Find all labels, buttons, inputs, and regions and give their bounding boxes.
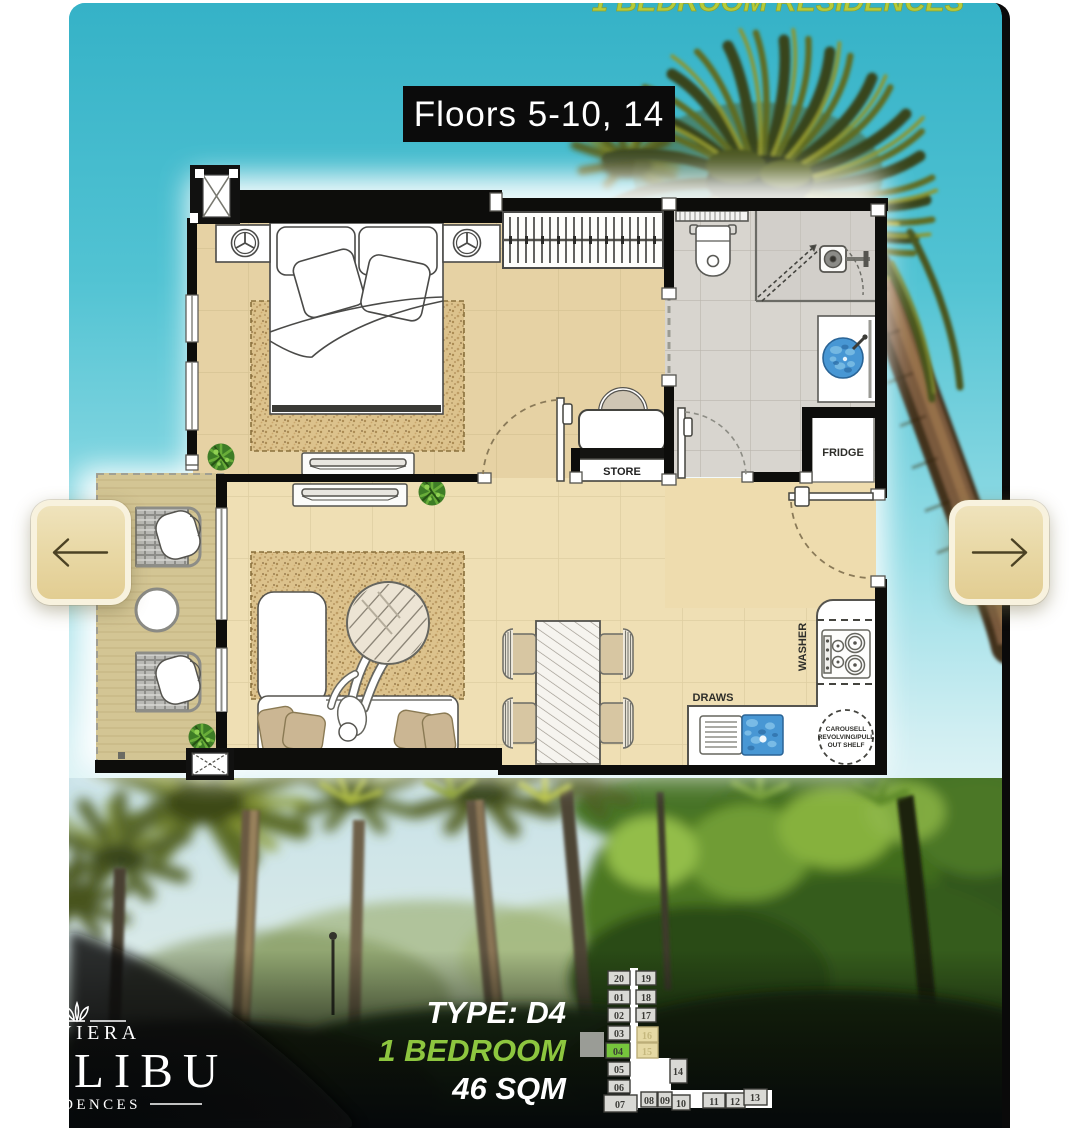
svg-text:18: 18 xyxy=(641,993,651,1004)
svg-text:12: 12 xyxy=(730,1097,740,1108)
svg-text:13: 13 xyxy=(750,1093,760,1104)
svg-text:06: 06 xyxy=(614,1083,624,1094)
svg-text:20: 20 xyxy=(614,974,624,985)
svg-text:TYPE: D4: TYPE: D4 xyxy=(426,995,566,1030)
svg-text:17: 17 xyxy=(641,1011,651,1022)
svg-text:10: 10 xyxy=(676,1099,686,1110)
svg-text:07: 07 xyxy=(615,1100,625,1111)
svg-text:16: 16 xyxy=(642,1031,652,1042)
svg-text:FRIDGE: FRIDGE xyxy=(822,447,864,459)
svg-text:WASHER: WASHER xyxy=(797,623,809,671)
svg-text:19: 19 xyxy=(641,974,651,985)
svg-text:01: 01 xyxy=(614,993,624,1004)
svg-text:Floors 5-10, 14: Floors 5-10, 14 xyxy=(414,95,664,134)
svg-text:1 BEDROOM: 1 BEDROOM xyxy=(378,1033,567,1068)
svg-text:STORE: STORE xyxy=(603,466,641,478)
svg-text:DRAWS: DRAWS xyxy=(693,692,734,704)
svg-text:MALIBU: MALIBU xyxy=(69,1043,228,1098)
svg-text:RESIDENCES: RESIDENCES xyxy=(69,1097,141,1113)
svg-text:03: 03 xyxy=(614,1029,624,1040)
svg-text:14: 14 xyxy=(673,1067,683,1078)
svg-text:09: 09 xyxy=(660,1096,670,1107)
svg-text:15: 15 xyxy=(642,1047,652,1058)
svg-text:CAROUSELL: CAROUSELL xyxy=(826,726,866,733)
svg-text:46 SQM: 46 SQM xyxy=(451,1071,567,1106)
svg-text:11: 11 xyxy=(709,1097,718,1108)
svg-text:1 BEDROOM RESIDENCES: 1 BEDROOM RESIDENCES xyxy=(592,3,965,18)
svg-text:RIVIERA: RIVIERA xyxy=(69,1022,141,1044)
svg-text:REVOLVING/PULL: REVOLVING/PULL xyxy=(818,734,875,741)
svg-text:02: 02 xyxy=(614,1011,624,1022)
svg-text:04: 04 xyxy=(613,1047,623,1058)
svg-text:05: 05 xyxy=(614,1065,624,1076)
svg-text:08: 08 xyxy=(644,1096,654,1107)
svg-text:OUT SHELF: OUT SHELF xyxy=(828,742,865,749)
